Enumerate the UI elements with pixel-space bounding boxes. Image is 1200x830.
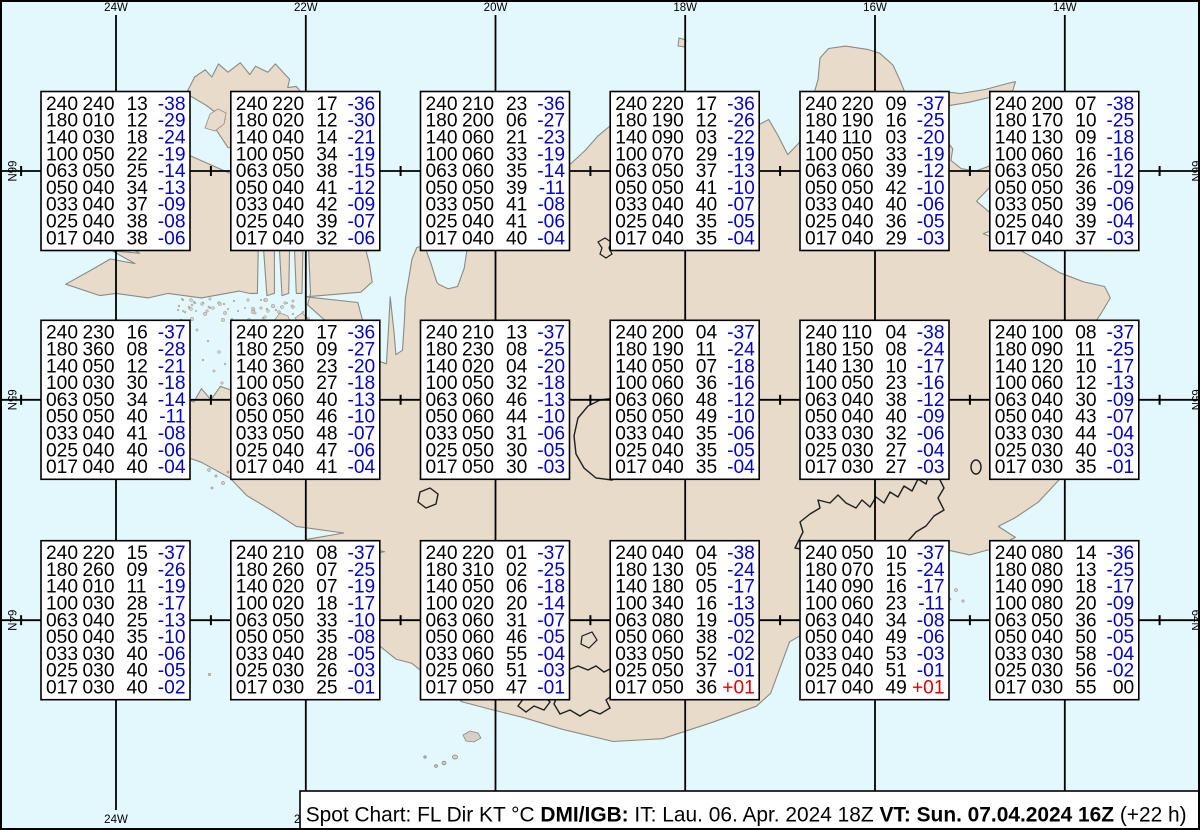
svg-text:24W: 24W: [104, 814, 128, 826]
svg-text:25: 25: [316, 678, 337, 699]
svg-text:14W: 14W: [1053, 2, 1077, 14]
svg-text:37: 37: [1075, 228, 1096, 249]
svg-text:017: 017: [805, 228, 837, 249]
svg-text:35: 35: [1075, 457, 1096, 478]
svg-text:-01: -01: [1106, 457, 1134, 478]
svg-text:27: 27: [886, 457, 907, 478]
svg-text:040: 040: [462, 228, 494, 249]
svg-text:017: 017: [46, 228, 78, 249]
svg-text:017: 017: [426, 678, 458, 699]
svg-text:+01: +01: [912, 678, 945, 699]
svg-text:017: 017: [46, 678, 78, 699]
svg-text:040: 040: [83, 228, 115, 249]
svg-text:030: 030: [842, 457, 874, 478]
svg-text:040: 040: [83, 457, 115, 478]
svg-text:40: 40: [127, 457, 148, 478]
svg-text:64N: 64N: [5, 610, 17, 631]
svg-text:040: 040: [272, 457, 304, 478]
svg-text:-04: -04: [727, 228, 755, 249]
svg-text:Spot Chart: FL Dir KT °C DMI/I: Spot Chart: FL Dir KT °C DMI/IGB: IT: La…: [306, 803, 1187, 826]
svg-text:017: 017: [995, 228, 1027, 249]
svg-text:-04: -04: [158, 457, 186, 478]
svg-text:017: 017: [426, 457, 458, 478]
svg-text:38: 38: [127, 228, 148, 249]
svg-text:65N: 65N: [5, 389, 17, 410]
svg-text:017: 017: [236, 678, 268, 699]
svg-text:017: 017: [615, 678, 647, 699]
svg-text:050: 050: [462, 457, 494, 478]
svg-text:030: 030: [83, 678, 115, 699]
svg-text:030: 030: [1031, 678, 1063, 699]
svg-text:20W: 20W: [484, 2, 508, 14]
svg-text:47: 47: [506, 678, 527, 699]
svg-text:-02: -02: [158, 678, 186, 699]
svg-text:-06: -06: [158, 228, 186, 249]
svg-text:017: 017: [46, 457, 78, 478]
svg-text:40: 40: [506, 228, 527, 249]
svg-text:017: 017: [615, 228, 647, 249]
svg-text:16W: 16W: [863, 2, 887, 14]
svg-text:017: 017: [236, 228, 268, 249]
svg-text:-01: -01: [537, 678, 565, 699]
svg-text:22W: 22W: [294, 2, 318, 14]
svg-text:30: 30: [506, 457, 527, 478]
svg-text:050: 050: [652, 678, 684, 699]
svg-text:18W: 18W: [673, 2, 697, 14]
svg-text:040: 040: [842, 678, 874, 699]
svg-text:040: 040: [272, 228, 304, 249]
svg-text:017: 017: [805, 678, 837, 699]
svg-text:017: 017: [236, 457, 268, 478]
svg-text:040: 040: [652, 457, 684, 478]
svg-text:017: 017: [615, 457, 647, 478]
svg-text:040: 040: [1031, 228, 1063, 249]
svg-text:24W: 24W: [104, 2, 128, 14]
svg-text:-04: -04: [537, 228, 565, 249]
svg-text:030: 030: [272, 678, 304, 699]
svg-text:40: 40: [127, 678, 148, 699]
svg-text:35: 35: [696, 228, 717, 249]
svg-text:-03: -03: [917, 228, 945, 249]
svg-text:-03: -03: [1106, 228, 1134, 249]
svg-text:41: 41: [316, 457, 337, 478]
svg-text:-03: -03: [917, 457, 945, 478]
svg-text:35: 35: [696, 457, 717, 478]
svg-text:55: 55: [1075, 678, 1096, 699]
svg-text:36: 36: [696, 678, 717, 699]
svg-text:-01: -01: [347, 678, 375, 699]
svg-text:-03: -03: [537, 457, 565, 478]
svg-text:66N: 66N: [5, 160, 17, 181]
svg-text:-04: -04: [727, 457, 755, 478]
svg-text:040: 040: [842, 228, 874, 249]
svg-text:-06: -06: [347, 228, 375, 249]
svg-text:00: 00: [1113, 678, 1134, 699]
svg-text:49: 49: [886, 678, 907, 699]
svg-text:030: 030: [1031, 457, 1063, 478]
svg-text:017: 017: [426, 228, 458, 249]
svg-text:29: 29: [886, 228, 907, 249]
svg-text:017: 017: [995, 457, 1027, 478]
svg-text:040: 040: [652, 228, 684, 249]
svg-text:+01: +01: [722, 678, 755, 699]
svg-text:-04: -04: [347, 457, 375, 478]
svg-text:017: 017: [805, 457, 837, 478]
svg-text:32: 32: [316, 228, 337, 249]
svg-text:050: 050: [462, 678, 494, 699]
svg-text:017: 017: [995, 678, 1027, 699]
